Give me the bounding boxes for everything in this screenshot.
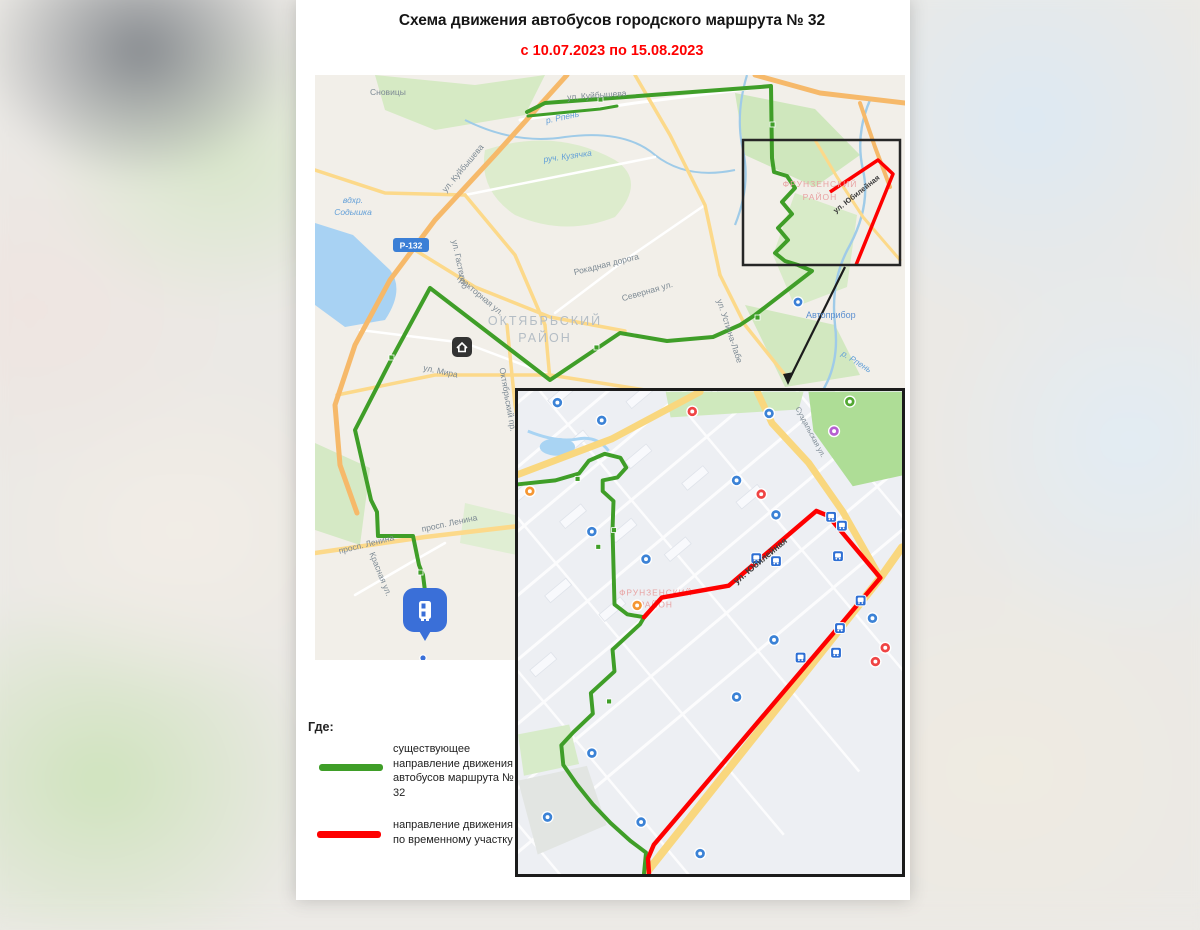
svg-text:Р-132: Р-132 <box>400 241 423 251</box>
district-label-line2: РАЙОН <box>518 330 572 345</box>
reservoir-label-2: Содышка <box>334 207 372 217</box>
legend-heading: Где: <box>308 720 334 734</box>
house-icon <box>452 337 472 357</box>
legend-existing-route-label: существующее направление движения автобу… <box>393 742 525 800</box>
legend-temporary-route-swatch <box>317 831 381 838</box>
legend-temporary-route-label: направление движения по временному участ… <box>393 818 525 847</box>
page-subtitle: с 10.07.2023 по 15.08.2023 <box>312 43 912 59</box>
legend: Где: существующее направление движения а… <box>305 715 540 890</box>
inset-district-line1: ФРУНЗЕНСКИЙ <box>783 178 858 189</box>
district-label-line1: ОКТЯБРЬСКИЙ <box>488 313 602 328</box>
inset-district-line2: РАЙОН <box>803 191 838 202</box>
reservoir-label-1: вдхр. <box>343 195 363 205</box>
settlement-label: Сновицы <box>370 87 406 97</box>
road-badge: Р-132 <box>393 238 429 252</box>
page-title: Схема движения автобусов городского марш… <box>312 12 912 30</box>
legend-existing-route-swatch <box>319 764 383 771</box>
avtopribor-label: Автоприбор <box>806 310 856 320</box>
detail-map: ФРУНЗЕНСКИЙ РАЙОН <box>515 388 905 877</box>
